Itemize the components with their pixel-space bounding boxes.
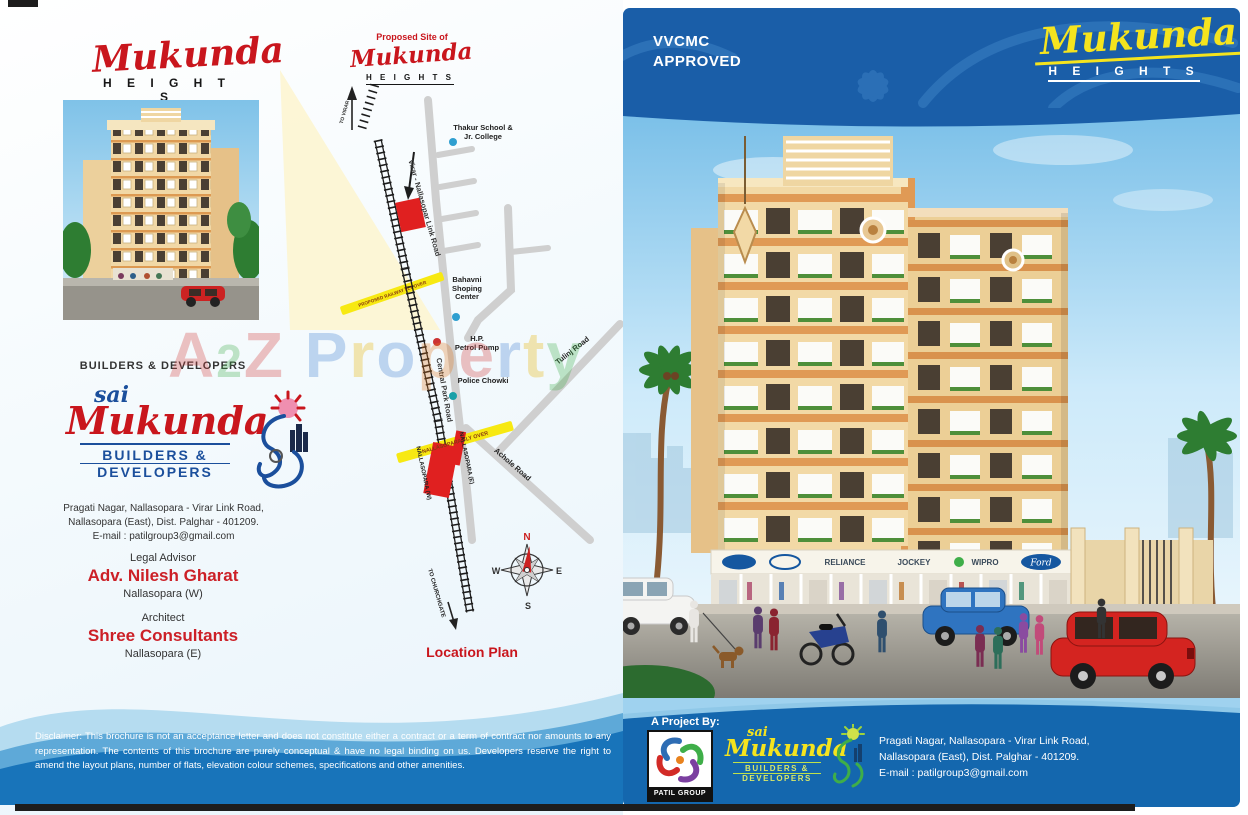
- cover-footer-band: A Project By: PATIL GROUP sai Mukunda: [623, 698, 1240, 807]
- compass-n: N: [523, 532, 530, 543]
- school-label: Thakur School & Jr. College: [446, 124, 520, 141]
- flower-decor: [856, 69, 891, 103]
- address-line-2: Nallasopara (East), Dist. Palghar - 4012…: [36, 516, 291, 530]
- mukunda-heights-logo-left: Mukunda H E I G H T S: [92, 38, 242, 108]
- churchgate-arrow: [448, 602, 458, 630]
- legal-title: Legal Advisor: [48, 552, 278, 564]
- location-plan-title: Location Plan: [402, 644, 542, 660]
- a2z-watermark: A2Z Property: [168, 318, 584, 392]
- patil-pinwheel: [649, 732, 711, 786]
- mukunda-heights-logo-right: Mukunda H E I G H T S: [1034, 18, 1214, 82]
- approved-line2: APPROVED: [653, 52, 741, 72]
- cover-scene: RELIANCE JOCKEY WIPRO Ford: [623, 108, 1240, 698]
- logo-script: Mukunda: [91, 34, 243, 78]
- architect-name: Shree Consultants: [48, 626, 278, 646]
- address-left: Pragati Nagar, Nallasopara - Virar Link …: [36, 502, 291, 544]
- shopping-line3: Center: [442, 293, 492, 302]
- proposed-site-marker: [395, 152, 426, 232]
- shop-sign-ford: Ford: [1029, 559, 1051, 569]
- legal-advisor-block: Legal Advisor Adv. Nilesh Gharat Nallaso…: [48, 552, 278, 600]
- building-photo-left: [63, 100, 259, 320]
- brand-sub1: BUILDERS &: [66, 447, 244, 463]
- compass-e: E: [556, 566, 562, 576]
- scan-mark-bottom: [15, 804, 1135, 811]
- footer-brand-sub2: DEVELOPERS: [733, 773, 821, 783]
- compass-rose: [501, 544, 553, 596]
- footer-brand-script: Mukunda: [725, 737, 835, 760]
- link-road-label: Virar - Nallasopar Link Road: [406, 158, 442, 257]
- shop-sign-jockey: JOCKEY: [898, 558, 932, 567]
- disclaimer-text: Disclaimer: This brochure is not an acce…: [35, 730, 611, 774]
- station-west-label: NALLASOPARA (W): [414, 446, 431, 501]
- school-line2: Jr. College: [446, 133, 520, 142]
- left-panel: Mukunda H E I G H T S: [0, 0, 623, 815]
- footer-address-line1: Pragati Nagar, Nallasopara - Virar Link …: [879, 734, 1179, 750]
- footer-brand-sub1: BUILDERS &: [725, 764, 829, 773]
- scan-mark-top: [8, 0, 38, 7]
- address-line-3: E-mail : patilgroup3@gmail.com: [36, 530, 291, 544]
- sai-mukunda-logo: sai Mukunda BUILDERS & DEVELOPERS: [66, 384, 256, 480]
- shop-sign-wipro: WIPRO: [971, 558, 998, 567]
- map-site-logo-block: H E I G H T S: [366, 73, 454, 85]
- project-by-label: A Project By:: [651, 716, 720, 728]
- to-virar-label: TO VIRAR: [339, 100, 351, 125]
- patil-group-label: PATIL GROUP: [649, 787, 711, 800]
- footer-brand-icon: [831, 724, 867, 794]
- brand-script: Mukunda: [66, 402, 256, 440]
- footer-address-line3: E-mail : patilgroup3@gmail.com: [879, 766, 1179, 782]
- police-dot: [449, 392, 457, 400]
- legal-name: Adv. Nilesh Gharat: [48, 566, 278, 586]
- compass-w: W: [492, 566, 501, 576]
- cover-header-band: VVCMC APPROVED Mukunda H E I G H T S: [623, 8, 1240, 108]
- patil-group-logo: PATIL GROUP: [647, 730, 713, 802]
- footer-address: Pragati Nagar, Nallasopara - Virar Link …: [879, 734, 1179, 781]
- approved-line1: VVCMC: [653, 32, 741, 52]
- to-churchgate-label: TO CHURCHGATE: [426, 568, 446, 618]
- map-site-logo-script: Mukunda: [349, 40, 470, 71]
- architect-block: Architect Shree Consultants Nallasopara …: [48, 612, 278, 660]
- station-east-label: NALLASOPARA (E): [458, 432, 475, 485]
- brand-sub2: DEVELOPERS: [80, 463, 230, 480]
- building-photo-illustration: [63, 100, 259, 320]
- railway-station: [423, 430, 466, 498]
- map-light-wedge: [280, 70, 440, 330]
- address-line-1: Pragati Nagar, Nallasopara - Virar Link …: [36, 502, 291, 516]
- nallasopara-flyover-label: NALLASOPARA FLY OVER: [421, 431, 489, 456]
- brochure-canvas: Mukunda H E I G H T S: [0, 0, 1248, 815]
- architect-title: Architect: [48, 612, 278, 624]
- logo-block-white: H E I G H T S: [1048, 64, 1199, 82]
- vvcmc-approved: VVCMC APPROVED: [653, 32, 741, 73]
- compound-wall-gate: [1071, 528, 1213, 608]
- footer-brand: sai Mukunda BUILDERS & DEVELOPERS: [725, 726, 835, 783]
- legal-location: Nallasopara (W): [48, 588, 278, 600]
- compass-s: S: [525, 601, 531, 611]
- map-site-logo: Mukunda H E I G H T S: [350, 44, 470, 85]
- right-panel: VVCMC APPROVED Mukunda H E I G H T S: [623, 8, 1240, 807]
- shop-sign-reliance: RELIANCE: [825, 558, 867, 567]
- footer-address-line2: Nallasopara (East), Dist. Palghar - 4012…: [879, 750, 1179, 766]
- shopping-label: Bahavni Shoping Center: [442, 276, 492, 302]
- sai-mukunda-icon: [248, 386, 310, 494]
- logo-script-yellow: Mukunda: [1033, 13, 1240, 66]
- achole-road-label: Achole Road: [492, 446, 533, 483]
- shop-logo-oval-1: [722, 555, 756, 570]
- proposed-flyover-label: PROPOSED RAILWAY FLY OVER: [358, 280, 428, 308]
